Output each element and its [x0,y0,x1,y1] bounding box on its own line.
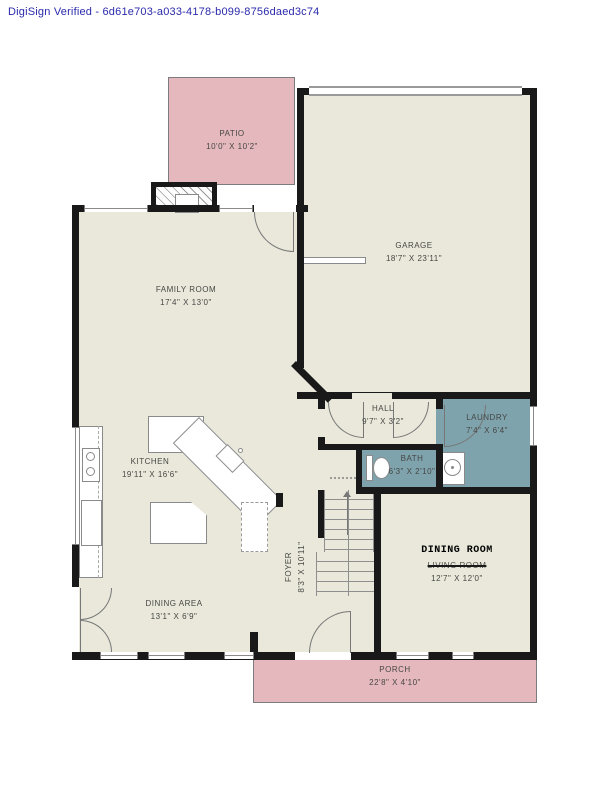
room-dims: 10'0" X 10'2" [206,141,258,154]
room-name: KITCHEN [122,456,178,469]
stair-direction-line [347,497,348,535]
floor-garage [297,88,537,208]
counter-dashed-section [241,502,268,552]
window [219,205,253,212]
wall [250,632,258,654]
room-name: BATH [389,453,436,466]
window [452,652,474,659]
french-door-opening [72,587,79,652]
room-name: GARAGE [386,240,442,253]
toilet-bowl [373,457,390,479]
room-dims: 19'11" X 16'6" [122,469,178,482]
room-dims: 12'7" X 12'0" [421,573,493,586]
garage-shelf [301,257,366,264]
dining-room-annotation: DINING ROOM [421,543,493,559]
wall [318,490,324,538]
floor-plan: PATIO 10'0" X 10'2" GARAGE 18'7" X 23'11… [0,0,612,792]
room-label-hall: HALL 9'7" X 3'2" [362,403,404,429]
room-label-bath: BATH 6'3" X 2'10" [389,453,436,479]
document-page: DigiSign Verified - 6d61e703-a033-4178-b… [0,0,612,792]
cooktop-burner [86,452,95,461]
stair-rail [348,490,349,596]
base-cabinet [81,500,102,546]
window [396,652,429,659]
room-label-kitchen: KITCHEN 19'11" X 16'6" [122,456,178,482]
room-name: LAUNDRY [466,412,508,425]
room-name: PORCH [369,664,421,677]
wall [297,392,537,399]
room-label-garage: GARAGE 18'7" X 23'11" [386,240,442,266]
window [72,427,79,545]
living-room-struck-label: LIVING ROOM [421,560,493,573]
wall [374,490,381,652]
room-label-porch: PORCH 22'8" X 4'10" [369,664,421,690]
staircase-lower [316,552,378,596]
front-door-opening [295,652,351,660]
room-dims: 17'4" X 13'0" [156,297,216,310]
stair-up-arrow-icon [343,491,351,497]
room-dims: 22'8" X 4'10" [369,677,421,690]
room-label-dining-room: DINING ROOM LIVING ROOM 12'7" X 12'0" [421,543,493,586]
kitchen-island [150,502,207,544]
window [224,652,254,659]
laundry-sink-drain [451,466,454,469]
sink-faucet [238,448,243,453]
wall [436,399,443,409]
room-dims: 9'7" X 3'2" [362,416,404,429]
wall [356,444,362,493]
room-dims: 8'3" X 10'11" [296,541,309,592]
room-label-dining-area: DINING AREA 13'1" X 6'9" [145,598,202,624]
hall-door-opening [352,393,392,399]
room-name: PATIO [206,128,258,141]
wall [530,88,537,660]
kitchen-hall-opening [318,409,325,437]
room-label-laundry: LAUNDRY 7'4" X 6'4" [466,412,508,438]
room-dims: 18'7" X 23'11" [386,253,442,266]
room-dims: 13'1" X 6'9" [145,611,202,624]
room-name: HALL [362,403,404,416]
garage-door [309,86,522,96]
cooktop-burner [86,467,95,476]
toilet-tank [366,455,373,481]
room-dims: 7'4" X 6'4" [466,425,508,438]
wall [356,444,443,450]
wall [297,88,304,368]
window [530,406,537,446]
room-dims: 6'3" X 2'10" [389,466,436,479]
room-name: FAMILY ROOM [156,284,216,297]
staircase-upper [324,490,374,552]
room-label-family-room: FAMILY ROOM 17'4" X 13'0" [156,284,216,310]
room-name: FOYER [283,541,296,592]
window [148,652,185,659]
room-label-foyer: FOYER 8'3" X 10'11" [283,541,309,592]
room-name: DINING AREA [145,598,202,611]
wall [276,493,283,507]
wall [356,487,537,494]
window [84,205,148,212]
patio-door-opening [254,205,296,212]
window [100,652,138,659]
room-label-patio: PATIO 10'0" X 10'2" [206,128,258,154]
